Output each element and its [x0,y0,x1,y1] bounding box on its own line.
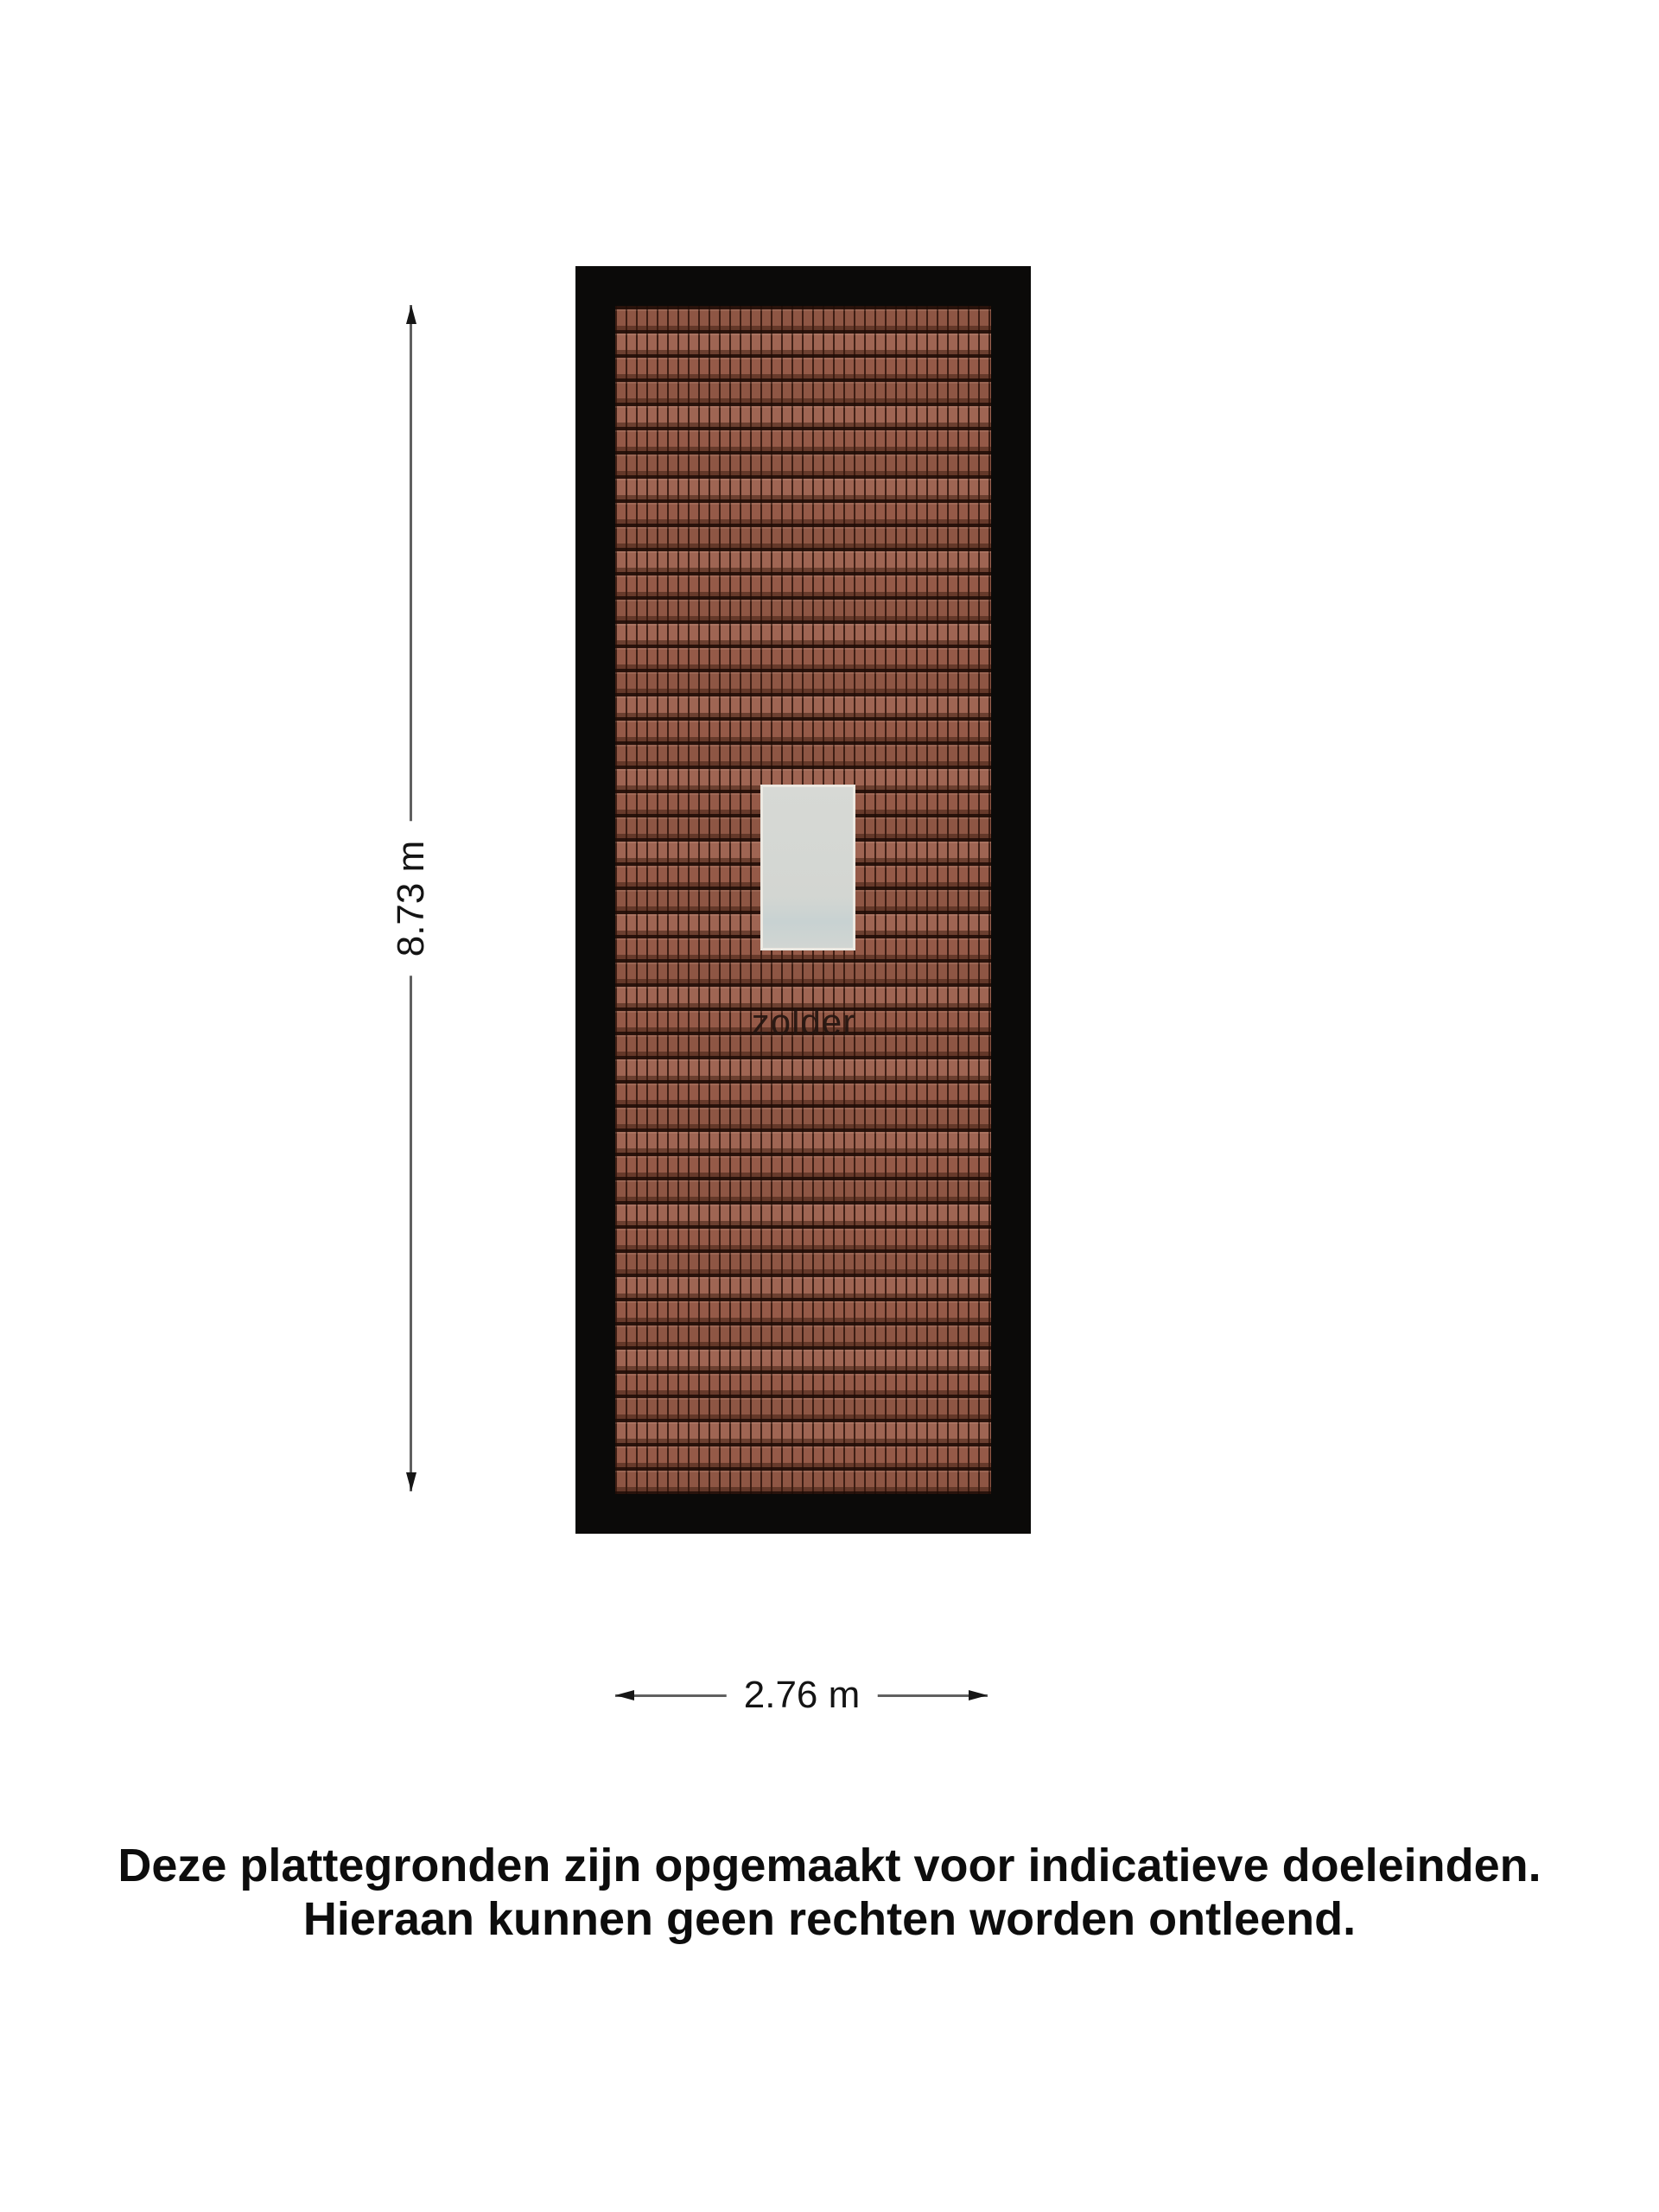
arrow-down-icon [406,1472,416,1491]
disclaimer-line-2: Hieraan kunnen geen rechten worden ontle… [0,1892,1659,1946]
disclaimer: Deze plattegronden zijn opgemaakt voor i… [0,1839,1659,1946]
arrow-left-icon [615,1690,634,1700]
vertical-dimension-label: 8.73 m [391,822,432,976]
floor-plan-page: 8.73 m zolder 2.76 m Deze plattegronden … [0,0,1659,2212]
horizontal-dimension-label: 2.76 m [727,1675,878,1716]
roof-tiles: zolder [615,306,991,1494]
roof-outline: zolder [575,266,1031,1534]
arrow-right-icon [969,1690,988,1700]
disclaimer-line-1: Deze plattegronden zijn opgemaakt voor i… [0,1839,1659,1892]
arrow-up-icon [406,305,416,324]
room-label: zolder [752,1004,855,1040]
skylight-window [760,785,855,950]
